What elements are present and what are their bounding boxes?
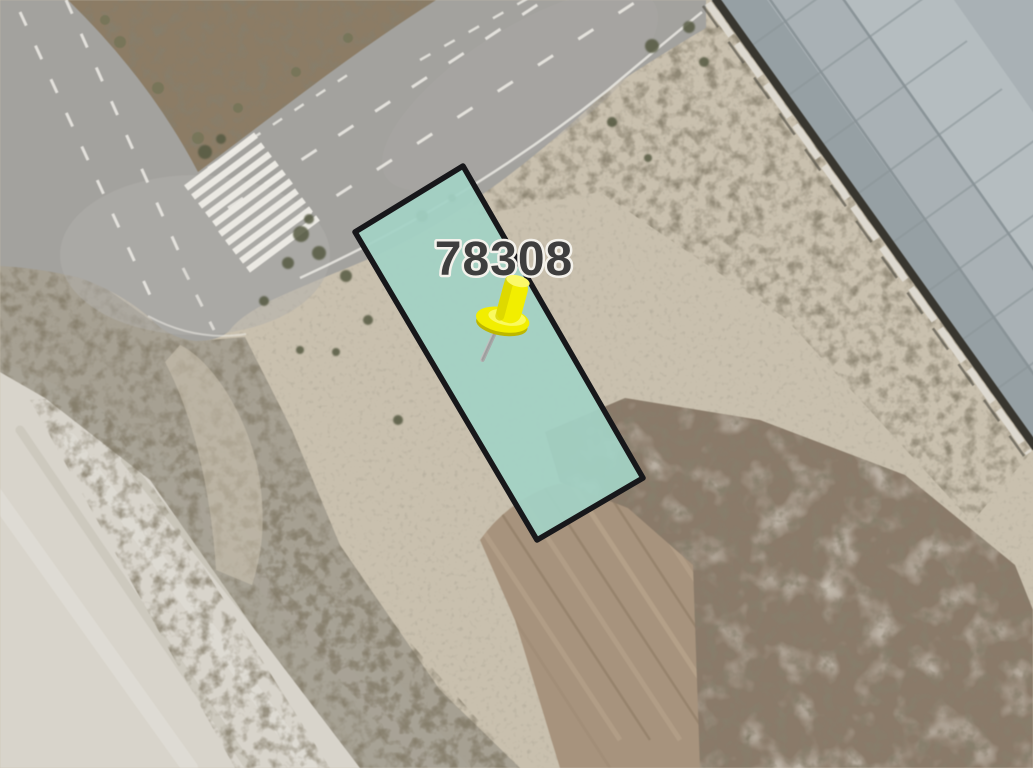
parcel-label: 78308 — [435, 233, 573, 286]
satellite-map[interactable]: 78308 — [0, 0, 1033, 768]
